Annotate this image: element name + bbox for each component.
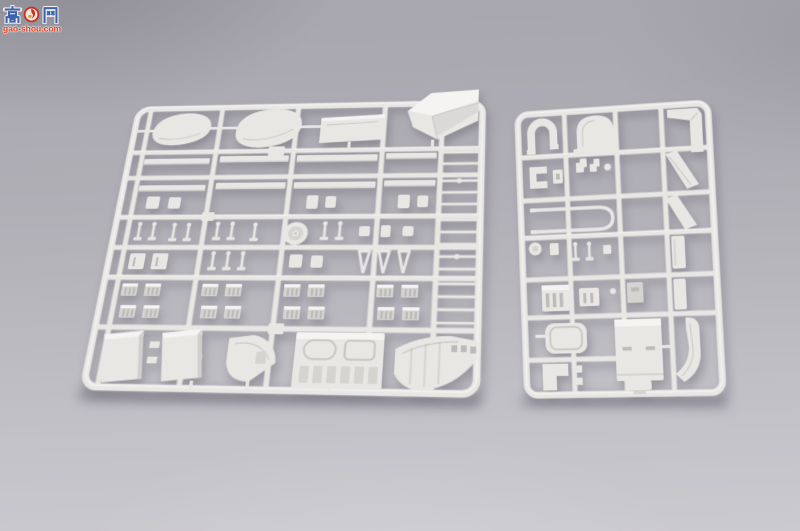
watermark: gao-shou.com [3,5,75,34]
pad-part [535,322,588,354]
curved-hull-part [393,336,478,392]
sprue-left [78,99,487,399]
sprue-right-graphic [499,83,743,414]
watermark-char-right [41,5,60,24]
sprue-right [514,99,727,399]
watermark-logo-row [3,5,75,24]
watermark-char-left [3,5,22,24]
sprue-left-post-parts [132,221,414,245]
sprue-left-graphic [49,72,508,436]
watermark-url: gao-shou.com [3,24,75,34]
watermark-emblem-icon [23,6,40,23]
photo-stage: gao-shou.com [0,0,800,531]
sprue-left-locker-parts [116,283,421,320]
sprue-right-box-parts [541,278,687,313]
curved-strip-part [673,317,702,382]
sprue-left-davit-parts [127,249,411,273]
deck-structure-part [291,332,385,390]
deckhouse-part [614,318,664,394]
dome-part [572,114,619,154]
sprue-left-top-parts [132,89,478,152]
l-shaped-part [542,364,569,391]
sprue-right-bottom-parts [535,317,703,396]
sprue-right-mid-parts [529,236,686,274]
